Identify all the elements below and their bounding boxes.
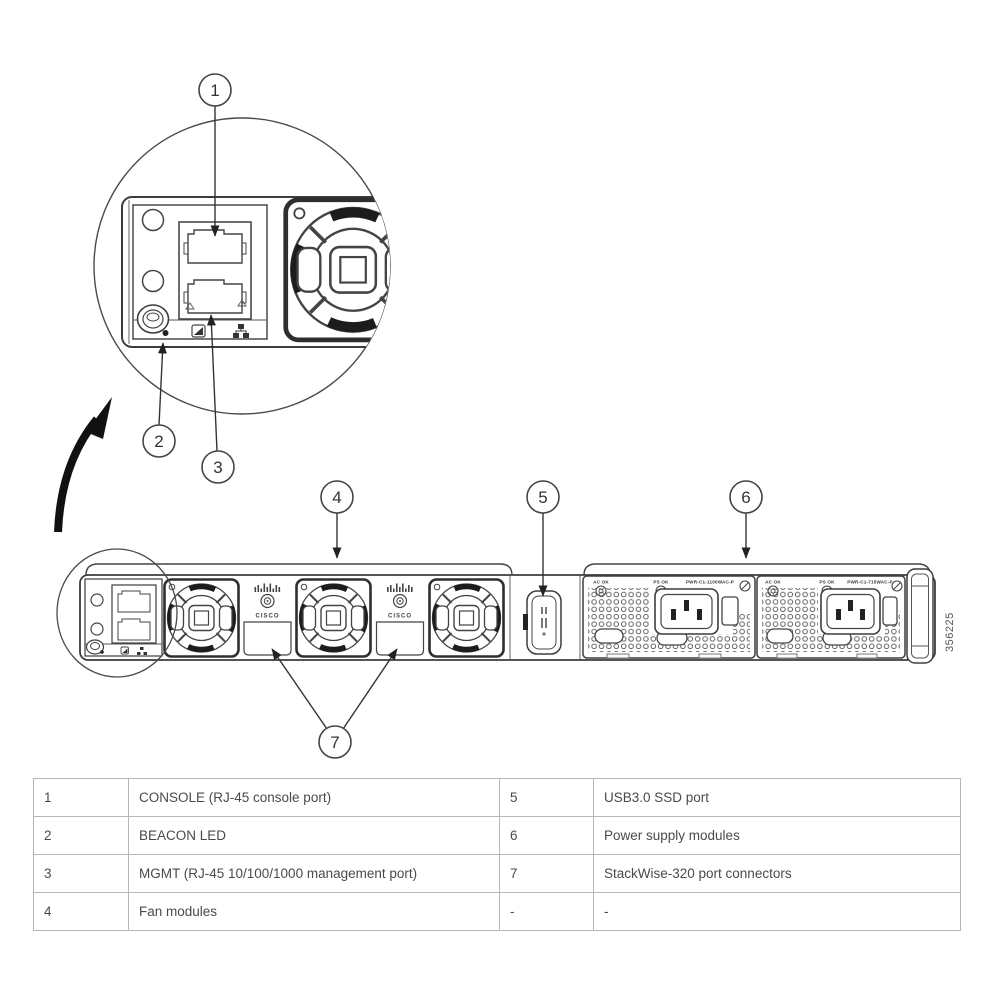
callout-7-label: 7 xyxy=(330,733,339,752)
callout-3: 3 xyxy=(202,451,234,483)
mgmt-port xyxy=(118,619,150,640)
beacon-led-dot xyxy=(100,650,104,654)
callout-3-label: 3 xyxy=(213,458,222,477)
psu2-model-label: PWR-C1-715WAC-P xyxy=(847,580,893,585)
psu1-ac-ok-label: AC OK xyxy=(593,580,609,585)
magnified-console-detail xyxy=(122,197,462,347)
legend-num: 1 xyxy=(34,779,129,817)
handle-cutout xyxy=(595,629,623,643)
callout-1-label: 1 xyxy=(210,81,219,100)
legend-desc: CONSOLE (RJ-45 console port) xyxy=(129,779,500,817)
legend-row: 2 BEACON LED 6 Power supply modules xyxy=(34,817,961,855)
power-inlet xyxy=(821,589,880,634)
legend-row: 1 CONSOLE (RJ-45 console port) 5 USB3.0 … xyxy=(34,779,961,817)
callout-4: 4 xyxy=(321,481,353,513)
magnify-arrow-icon xyxy=(58,397,112,532)
psu-module-2: AC OK PS OK PWR-C1-715WAC-P xyxy=(757,576,905,658)
figure-id: 356225 xyxy=(944,612,956,652)
legend-desc: - xyxy=(594,893,961,931)
switch-rear-panel-diagram: CISCO xyxy=(0,0,1000,772)
power-inlet xyxy=(655,589,718,634)
legend-row: 4 Fan modules - - xyxy=(34,893,961,931)
console-port xyxy=(118,591,150,612)
psu1-ps-ok-label: PS OK xyxy=(653,580,669,585)
callout-1: 1 xyxy=(199,74,231,106)
usb-ssd-slot xyxy=(523,591,561,654)
legend-num: 7 xyxy=(500,855,594,893)
legend-num: 2 xyxy=(34,817,129,855)
legend-num: 3 xyxy=(34,855,129,893)
legend-num: 6 xyxy=(500,817,594,855)
callout-2: 2 xyxy=(143,425,175,457)
legend-desc: Fan modules xyxy=(129,893,500,931)
screw-hole-icon xyxy=(143,271,164,292)
screw-hole-icon xyxy=(91,594,103,606)
psu-group-bracket xyxy=(584,564,930,575)
callout-6-label: 6 xyxy=(741,488,750,507)
psu1-model-label: PWR-C1-1100WAC-P xyxy=(686,580,734,585)
callout-4-label: 4 xyxy=(332,488,341,507)
callout-line-7b xyxy=(343,649,397,729)
chassis-console-block xyxy=(85,579,162,656)
legend-row: 3 MGMT (RJ-45 10/100/1000 management por… xyxy=(34,855,961,893)
callout-7: 7 xyxy=(319,726,351,758)
callout-5-label: 5 xyxy=(538,488,547,507)
psu2-ac-ok-label: AC OK xyxy=(765,580,781,585)
screw-hole-icon xyxy=(91,623,103,635)
psu-latch xyxy=(883,597,897,625)
handle-cutout xyxy=(767,629,793,643)
callout-5: 5 xyxy=(527,481,559,513)
beacon-led-dot xyxy=(163,330,169,336)
chassis: AC OK PS OK PWR-C1-1100WAC-P xyxy=(57,549,935,677)
legend-desc: BEACON LED xyxy=(129,817,500,855)
legend-table: 1 CONSOLE (RJ-45 console port) 5 USB3.0 … xyxy=(33,778,961,931)
legend-num: - xyxy=(500,893,594,931)
usb-latch xyxy=(523,614,528,630)
psu2-ps-ok-label: PS OK xyxy=(819,580,835,585)
fan-group-bracket xyxy=(86,564,512,575)
legend-num: 5 xyxy=(500,779,594,817)
legend: 1 CONSOLE (RJ-45 console port) 5 USB3.0 … xyxy=(33,778,961,931)
screw-hole-icon xyxy=(143,210,164,231)
callout-line-7a xyxy=(272,649,327,729)
legend-desc: StackWise-320 port connectors xyxy=(594,855,961,893)
callout-2-label: 2 xyxy=(154,432,163,451)
legend-desc: Power supply modules xyxy=(594,817,961,855)
legend-num: 4 xyxy=(34,893,129,931)
psu-module-1: AC OK PS OK PWR-C1-1100WAC-P xyxy=(583,576,755,658)
chassis-end-bracket xyxy=(907,569,933,663)
legend-desc: MGMT (RJ-45 10/100/1000 management port) xyxy=(129,855,500,893)
psu-latch xyxy=(722,597,738,625)
legend-desc: USB3.0 SSD port xyxy=(594,779,961,817)
figure-page: CISCO xyxy=(0,0,1000,1000)
callout-6: 6 xyxy=(730,481,762,513)
